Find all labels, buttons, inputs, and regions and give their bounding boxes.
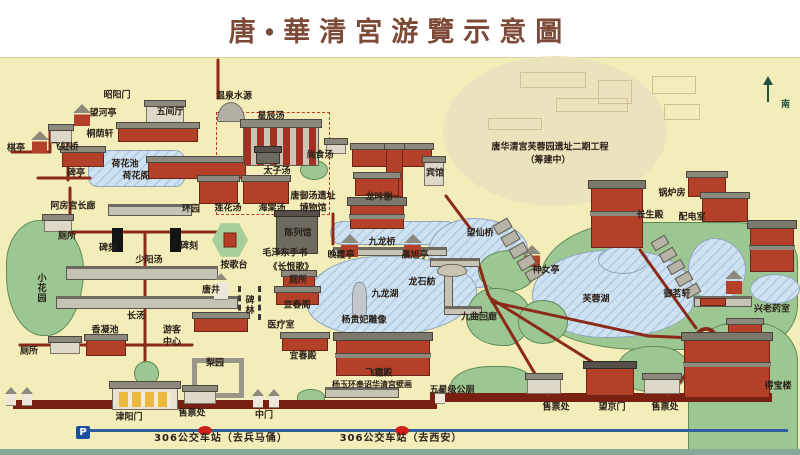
map-label: 莲花汤 xyxy=(214,205,241,214)
map-label: 少阳汤 xyxy=(135,257,162,266)
wangjing-gate xyxy=(586,366,634,396)
stele-pavilion xyxy=(62,150,104,167)
sketch-building xyxy=(520,72,586,88)
tongyin-xuan xyxy=(50,128,72,143)
map-label: 芙蓉湖 xyxy=(582,296,609,305)
main-road-west xyxy=(13,400,437,409)
map-label: 小花园 xyxy=(36,273,45,303)
map-label: 飞霜殿 xyxy=(365,370,392,379)
sketch-building xyxy=(652,76,696,94)
map-label: 环园 xyxy=(182,206,200,215)
afang-corridor xyxy=(108,204,192,216)
map-label: 望京门 xyxy=(598,404,625,413)
changsheng-hall xyxy=(591,186,643,248)
shaoyang-corridor xyxy=(66,266,218,280)
west-wall-tower xyxy=(22,388,32,406)
page-title: 唐•華清宮游覽示意圖 xyxy=(0,10,800,49)
map-label: 厕所 xyxy=(20,348,38,357)
edge-pond xyxy=(750,274,800,304)
map-label: 神女亭 xyxy=(532,267,559,276)
map-label: 阿房宫长廊 xyxy=(50,203,95,212)
map-label: 博物馆 xyxy=(299,205,326,214)
lianhua-bath xyxy=(199,179,238,204)
map-label: 按歌台 xyxy=(220,262,247,271)
haitang-bath xyxy=(243,179,289,204)
map-label: 碑亭 xyxy=(67,170,85,179)
map-label: 龙石舫 xyxy=(408,279,435,288)
power-room xyxy=(702,196,748,222)
ticket-office-west xyxy=(184,389,216,404)
map-label: （筹建中） xyxy=(525,157,570,166)
map-label: 毛泽东手书 xyxy=(262,250,307,259)
toilet-southwest xyxy=(50,340,80,354)
island-green xyxy=(518,300,568,344)
map-label: 宾馆 xyxy=(426,170,444,179)
map-label: 配电室 xyxy=(678,214,705,223)
five-room-hall xyxy=(118,126,198,142)
map-label: 梨园 xyxy=(206,360,224,369)
map-label: 九龙桥 xyxy=(368,239,395,248)
toilet-west xyxy=(44,218,72,232)
map-label: 九曲回廊 xyxy=(461,314,497,323)
compass-arrow-icon xyxy=(767,80,769,102)
debao-tower xyxy=(684,338,770,398)
map-label: 游客 xyxy=(163,327,181,336)
map-label: 厕所 xyxy=(289,277,307,286)
map-label: 荷花池 xyxy=(111,161,138,170)
map-label: 长汤 xyxy=(127,313,145,322)
map-label: 唐井 xyxy=(202,287,220,296)
map-label: 棋亭 xyxy=(7,145,25,154)
map-bottom-border xyxy=(0,449,800,455)
map-label: 杨玉环奉诏华清宫壁画 xyxy=(332,381,412,389)
map-canvas: 南 P 昭阳门望河亭五间厅桐荫轩棋亭飞虹桥荷花池荷花阁碑亭温泉水源星辰汤尚食汤太… xyxy=(0,0,800,455)
yichun-hall xyxy=(282,336,328,351)
map-label: 晚霞亭 xyxy=(327,252,354,261)
map-label: 太子汤 xyxy=(263,168,290,177)
map-label: 龙吟榭 xyxy=(365,194,392,203)
stele-forest-column xyxy=(258,286,261,320)
yuming-hall xyxy=(700,298,726,306)
map-label: 温泉水源 xyxy=(216,93,252,102)
xiangning-pool-hall xyxy=(86,338,126,356)
west-wall-tower xyxy=(6,388,16,406)
map-label: 桐荫轩 xyxy=(86,131,113,140)
bus-route-line xyxy=(78,429,788,432)
map-label: 306公交车站（去兵马俑） xyxy=(154,434,288,444)
map-label: 碑林 xyxy=(244,295,253,315)
map-label: 碑刻 xyxy=(99,245,117,254)
map-label: 唐华清宫芙蓉园遗址二期工程 xyxy=(491,144,608,153)
map-label: 津阳门 xyxy=(115,414,142,423)
map-label: 御茗轩 xyxy=(663,291,690,300)
map-label: 售票处 xyxy=(651,404,678,413)
map-label: 中门 xyxy=(255,412,273,421)
chess-pavilion xyxy=(32,133,47,153)
map-label: 晨旭亭 xyxy=(401,252,428,261)
map-label: 碑刻 xyxy=(180,243,198,252)
sketch-building xyxy=(664,104,700,120)
sketch-building xyxy=(488,118,542,130)
parking-icon: P xyxy=(76,426,90,439)
compass-label: 南 xyxy=(781,97,790,110)
wanghe-pavilion xyxy=(74,106,90,126)
sketch-building xyxy=(598,80,632,104)
map-label: 香凝池 xyxy=(91,327,118,336)
prince-bath xyxy=(256,150,280,164)
map-label: 唐御汤遗址 xyxy=(290,193,335,202)
map-label: 望仙桥 xyxy=(466,230,493,239)
map-label: 得宝楼 xyxy=(764,383,791,392)
map-label: 五星级公厕 xyxy=(429,387,474,396)
yang-guifei-statue xyxy=(352,282,367,318)
map-label: 《长恨歌》 xyxy=(268,264,313,273)
map-label: 飞虹桥 xyxy=(51,144,78,153)
middle-gate-tower xyxy=(269,390,279,408)
jinyang-gate xyxy=(112,386,178,410)
changtang-corridor xyxy=(56,296,238,309)
map-label: 宜春殿 xyxy=(289,353,316,362)
middle-gate-tower xyxy=(253,390,263,408)
map-label: 望河亭 xyxy=(89,110,116,119)
map-label: 售票处 xyxy=(178,410,205,419)
east-tower xyxy=(750,226,794,272)
pond-pavilion xyxy=(726,272,742,294)
west-pond xyxy=(598,246,648,274)
map-label: 宜春阁 xyxy=(283,302,310,311)
map-label: 长生殿 xyxy=(636,212,663,221)
map-label: 陈列馆 xyxy=(284,230,311,239)
page: 唐•華清宮游覽示意圖 南 P 昭阳门望河亭五间厅桐荫轩棋亭飞虹桥荷花池荷花阁碑亭… xyxy=(0,0,800,455)
map-label: 306公交车站（去西安） xyxy=(340,434,463,444)
map-label: 杨贵妃雕像 xyxy=(341,317,386,326)
longyin-xie xyxy=(350,203,404,229)
map-label: 五间厅 xyxy=(156,109,183,118)
map-label: 兴老药室 xyxy=(754,306,790,315)
visitor-center xyxy=(194,316,248,332)
map-label: 厕所 xyxy=(58,233,76,242)
map-label: 海棠汤 xyxy=(258,205,285,214)
ticket-office-east xyxy=(644,377,680,394)
map-label: 售票处 xyxy=(542,404,569,413)
map-label: 星辰汤 xyxy=(257,113,284,122)
map-label: 锅炉房 xyxy=(658,190,685,199)
map-label: 九龙湖 xyxy=(371,291,398,300)
map-label: 尚食汤 xyxy=(306,152,333,161)
map-label: 荷花阁 xyxy=(122,173,149,182)
map-label: 医疗室 xyxy=(267,322,294,331)
map-label: 昭阳门 xyxy=(103,92,130,101)
dragon-stone-boat xyxy=(437,264,467,277)
map-label: 中心 xyxy=(163,339,181,348)
ticket-office-south xyxy=(527,377,561,394)
